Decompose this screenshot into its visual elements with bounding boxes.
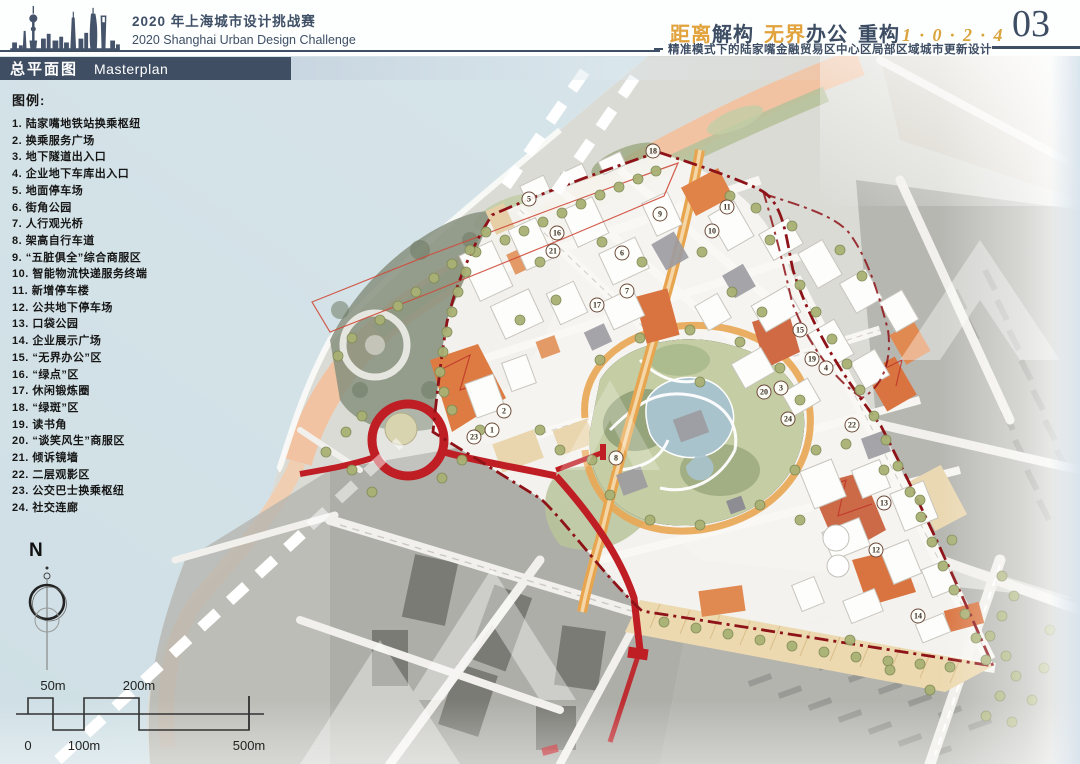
- legend-item: 22. 二层观影区: [12, 467, 282, 484]
- legend-item: 14. 企业展示广场: [12, 333, 282, 350]
- section-title-en: Masterplan: [94, 61, 168, 77]
- north-arrow: N: [28, 540, 78, 674]
- legend-item: 11. 新增停车楼: [12, 283, 282, 300]
- page-number: 03: [1012, 2, 1050, 46]
- scale-label-200m: 200m: [123, 678, 156, 693]
- page-number-rule: [992, 46, 1080, 49]
- scale-label-50m: 50m: [40, 678, 65, 693]
- legend-item: 21. 倾诉镜墙: [12, 450, 282, 467]
- scale-label-100m: 100m: [68, 738, 101, 753]
- scale-label-0: 0: [24, 738, 31, 753]
- compass-icon: [28, 564, 78, 674]
- legend-title: 图例:: [12, 90, 282, 109]
- legend-item: 2. 换乘服务广场: [12, 133, 282, 150]
- legend-item: 19. 读书角: [12, 417, 282, 434]
- legend-item: 23. 公交巴士换乘枢纽: [12, 483, 282, 500]
- legend-item: 20. “谈笑风生”商服区: [12, 433, 282, 450]
- map-legend: 图例: 1. 陆家嘴地铁站换乘枢纽2. 换乘服务广场3. 地下隧道出入口4. 企…: [12, 90, 282, 517]
- legend-item: 7. 人行观光桥: [12, 216, 282, 233]
- legend-item: 3. 地下隧道出入口: [12, 149, 282, 166]
- event-title-block: 2020 年上海城市设计挑战赛 2020 Shanghai Urban Desi…: [132, 10, 356, 47]
- legend-item: 12. 公共地下停车场: [12, 300, 282, 317]
- scale-label-500m: 500m: [233, 738, 266, 753]
- legend-item: 9. “五脏俱全”综合商服区: [12, 250, 282, 267]
- shanghai-skyline-logo-icon: [6, 4, 126, 54]
- legend-item: 4. 企业地下车库出入口: [12, 166, 282, 183]
- section-title-cn: 总平面图: [10, 58, 78, 79]
- legend-item: 13. 口袋公园: [12, 316, 282, 333]
- legend-item: 15. “无界办公”区: [12, 350, 282, 367]
- legend-item: 1. 陆家嘴地铁站换乘枢纽: [12, 116, 282, 133]
- right-accent-band: [1050, 56, 1080, 764]
- legend-item: 5. 地面停车场: [12, 183, 282, 200]
- legend-item: 10. 智能物流快递服务终端: [12, 266, 282, 283]
- legend-item: 17. 休闲锻炼圈: [12, 383, 282, 400]
- legend-item: 24. 社交连廊: [12, 500, 282, 517]
- event-title-cn: 2020 年上海城市设计挑战赛: [132, 10, 356, 30]
- scale-bar: 50m 200m 0 100m 500m: [12, 668, 282, 760]
- legend-item: 18. “绿斑”区: [12, 400, 282, 417]
- event-title-en: 2020 Shanghai Urban Design Challenge: [132, 33, 356, 47]
- north-label: N: [29, 540, 78, 562]
- banner-gradient-band: [291, 57, 1080, 80]
- project-subtitle: 精准模式下的陆家嘴金融贸易区中心区局部区域城市更新设计: [668, 41, 992, 57]
- subtitle-row: 精准模式下的陆家嘴金融贸易区中心区局部区域城市更新设计: [654, 41, 992, 57]
- legend-item: 6. 街角公园: [12, 200, 282, 217]
- header-rule: [0, 50, 660, 52]
- legend-item: 8. 架高自行车道: [12, 233, 282, 250]
- section-banner: 总平面图 Masterplan: [0, 57, 291, 80]
- legend-item: 16. “绿点”区: [12, 367, 282, 384]
- legend-items: 1. 陆家嘴地铁站换乘枢纽2. 换乘服务广场3. 地下隧道出入口4. 企业地下车…: [12, 116, 282, 517]
